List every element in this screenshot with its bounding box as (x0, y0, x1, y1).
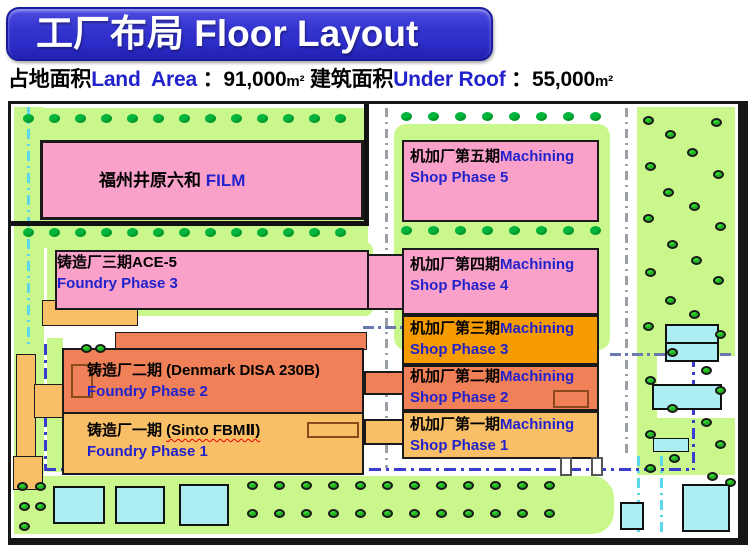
tree-icon (645, 268, 656, 277)
tree-icon (309, 114, 320, 123)
tree-icon (490, 509, 501, 518)
tree-icon (715, 222, 726, 231)
label-machining-phase1: 机加厂第一期MachiningShop Phase 1 (410, 414, 574, 456)
tree-icon (713, 276, 724, 285)
tree-icon (19, 522, 30, 531)
tree-icon (643, 322, 654, 331)
tree-icon (153, 114, 164, 123)
tree-icon (95, 344, 106, 353)
road-centerline-east (625, 108, 628, 456)
tree-icon (455, 226, 466, 235)
tree-icon (715, 386, 726, 395)
roof-area-label-en: Under Roof (393, 68, 505, 91)
tree-icon (17, 482, 28, 491)
tree-icon (645, 162, 656, 171)
label-en2: Shop Phase 1 (410, 437, 508, 454)
tree-icon (536, 112, 547, 121)
tree-icon (274, 481, 285, 490)
tree-icon (409, 481, 420, 490)
tree-icon (328, 481, 339, 490)
boundary-line-cyan-left (27, 107, 30, 345)
tree-icon (101, 228, 112, 237)
label-cn-model: (Sinto FBMⅡ) (166, 422, 260, 439)
tree-icon (663, 188, 674, 197)
tree-icon (436, 509, 447, 518)
tree-icon (701, 366, 712, 375)
tree-icon (382, 481, 393, 490)
cyan-building-east-3 (653, 438, 689, 452)
tree-icon (428, 226, 439, 235)
label-film: 福州井原六和 FILM (99, 170, 245, 191)
tree-icon (482, 226, 493, 235)
label-cn: 机加厂第四期 (410, 256, 500, 273)
page-title: 工厂布局 Floor Layout (6, 7, 493, 61)
tree-icon (536, 226, 547, 235)
tree-icon (309, 228, 320, 237)
label-film-cn: 福州井原六和 (99, 171, 206, 190)
tree-icon (563, 226, 574, 235)
tree-icon (687, 148, 698, 157)
gate-house (620, 502, 644, 530)
label-en2: Shop Phase 5 (410, 169, 508, 186)
tree-icon (669, 454, 680, 463)
tree-icon (667, 240, 678, 249)
tree-icon (544, 481, 555, 490)
label-en1: Machining (500, 416, 574, 433)
tree-icon (81, 344, 92, 353)
parcel-boundary-horizontal (11, 221, 369, 226)
tree-icon (23, 228, 34, 237)
label-cn: 铸造厂三期ACE-5 (57, 254, 177, 271)
tree-icon (701, 418, 712, 427)
tree-icon (725, 478, 736, 487)
tree-icon (355, 481, 366, 490)
tree-icon (35, 482, 46, 491)
tree-icon (715, 330, 726, 339)
roof-area-value: ：55,000 (506, 68, 595, 91)
cyan-building-east-2 (652, 384, 722, 410)
tree-icon (691, 256, 702, 265)
tree-icon (707, 472, 718, 481)
label-en2: Shop Phase 3 (410, 341, 508, 358)
tree-icon (335, 228, 346, 237)
corridor-foundry2 (364, 371, 404, 395)
tree-icon (689, 202, 700, 211)
tree-icon (35, 502, 46, 511)
tree-icon (19, 502, 30, 511)
land-area-unit: m² (286, 73, 304, 90)
label-film-en: FILM (206, 171, 246, 190)
tree-icon (231, 114, 242, 123)
roof-area-label-cn: 建筑面积 (304, 68, 393, 91)
label-machining-phase5: 机加厂第五期MachiningShop Phase 5 (410, 146, 574, 188)
tree-icon (490, 481, 501, 490)
tree-icon (401, 112, 412, 121)
tree-icon (436, 481, 447, 490)
label-en: Foundry Phase 1 (87, 443, 208, 460)
label-en1: Machining (500, 256, 574, 273)
tree-icon (482, 112, 493, 121)
roof-area-unit: m² (595, 73, 613, 90)
label-foundry-phase2: 铸造厂二期 (Denmark DISA 230B)Foundry Phase 2 (87, 360, 320, 402)
tree-icon (643, 116, 654, 125)
tree-icon (179, 114, 190, 123)
floor-layout-map: 福州井原六和 FILM 铸造厂三期ACE-5Foundry Phase 3 铸造… (8, 101, 748, 545)
label-foundry-phase1: 铸造厂一期 (Sinto FBMⅡ)Foundry Phase 1 (87, 420, 260, 462)
label-en1: Machining (500, 320, 574, 337)
tree-icon (127, 114, 138, 123)
tree-icon (463, 509, 474, 518)
label-machining-phase2: 机加厂第二期MachiningShop Phase 2 (410, 366, 574, 408)
tree-icon (713, 170, 724, 179)
tree-icon (509, 226, 520, 235)
tree-icon (335, 114, 346, 123)
tree-icon (127, 228, 138, 237)
tree-icon (283, 114, 294, 123)
tree-icon (590, 226, 601, 235)
label-foundry-phase3: 铸造厂三期ACE-5Foundry Phase 3 (57, 252, 178, 294)
tree-icon (509, 112, 520, 121)
tree-icon (247, 509, 258, 518)
label-cn: 机加厂第二期 (410, 368, 500, 385)
tree-icon (179, 228, 190, 237)
tree-icon (274, 509, 285, 518)
label-cn: 机加厂第一期 (410, 416, 500, 433)
tree-icon (49, 114, 60, 123)
land-area-label-en: Land Area (91, 68, 197, 91)
tree-icon (643, 214, 654, 223)
slide: 工厂布局 Floor Layout 占地面积Land Area ：91,000m… (0, 0, 755, 554)
label-en: Foundry Phase 3 (57, 275, 178, 292)
tree-icon (49, 228, 60, 237)
label-cn: 机加厂第三期 (410, 320, 500, 337)
tree-icon (401, 226, 412, 235)
tree-icon (563, 112, 574, 121)
divider (667, 342, 717, 344)
tree-icon (689, 310, 700, 319)
tree-icon (711, 118, 722, 127)
label-machining-phase3: 机加厂第三期MachiningShop Phase 3 (410, 318, 574, 360)
label-en2: Shop Phase 2 (410, 389, 508, 406)
boundary-line-mid (363, 326, 405, 329)
machining1-leg-east (591, 457, 603, 476)
building-aux-west-tall (16, 354, 36, 466)
tree-icon (205, 228, 216, 237)
tree-icon (667, 348, 678, 357)
tree-icon (409, 509, 420, 518)
tree-icon (301, 481, 312, 490)
tree-icon (247, 481, 258, 490)
tree-icon (382, 509, 393, 518)
label-machining-phase4: 机加厂第四期MachiningShop Phase 4 (410, 254, 574, 296)
tree-icon (23, 114, 34, 123)
label-en1: Machining (500, 368, 574, 385)
tree-icon (517, 481, 528, 490)
tree-icon (205, 114, 216, 123)
tree-icon (257, 228, 268, 237)
tree-icon (355, 509, 366, 518)
machining1-leg-west (560, 457, 572, 476)
tree-icon (75, 228, 86, 237)
tree-icon (328, 509, 339, 518)
tree-icon (645, 430, 656, 439)
tree-icon (463, 481, 474, 490)
land-area-value: ：91,000 (197, 68, 286, 91)
corridor-foundry3 (367, 254, 404, 310)
label-en2: Shop Phase 4 (410, 277, 508, 294)
tree-icon (153, 228, 164, 237)
tree-icon (667, 404, 678, 413)
tree-icon (590, 112, 601, 121)
label-cn: 铸造厂二期 (Denmark DISA 230B) (87, 362, 320, 379)
foundry1-detail (307, 422, 359, 438)
tree-icon (75, 114, 86, 123)
tree-icon (101, 114, 112, 123)
tree-icon (665, 130, 676, 139)
tree-icon (665, 296, 676, 305)
tree-icon (715, 440, 726, 449)
tree-icon (301, 509, 312, 518)
cyan-building-southwest-1 (53, 486, 105, 524)
parcel-boundary-vertical (364, 104, 369, 226)
tree-icon (257, 114, 268, 123)
tree-icon (544, 509, 555, 518)
cyan-building-southwest-3 (179, 484, 229, 526)
tree-icon (517, 509, 528, 518)
label-en1: Machining (500, 148, 574, 165)
label-cn: 机加厂第五期 (410, 148, 500, 165)
tree-icon (283, 228, 294, 237)
corridor-foundry1 (364, 419, 404, 445)
label-en: Foundry Phase 2 (87, 383, 208, 400)
label-cn: 铸造厂一期 (87, 422, 166, 439)
tree-icon (455, 112, 466, 121)
cyan-building-southeast (682, 484, 730, 532)
tree-icon (231, 228, 242, 237)
area-summary: 占地面积Land Area ：91,000m² 建筑面积Under Roof ：… (8, 63, 755, 93)
tree-icon (645, 464, 656, 473)
cyan-building-southwest-2 (115, 486, 165, 524)
tree-icon (428, 112, 439, 121)
land-area-label-cn: 占地面积 (8, 68, 91, 91)
tree-icon (645, 376, 656, 385)
